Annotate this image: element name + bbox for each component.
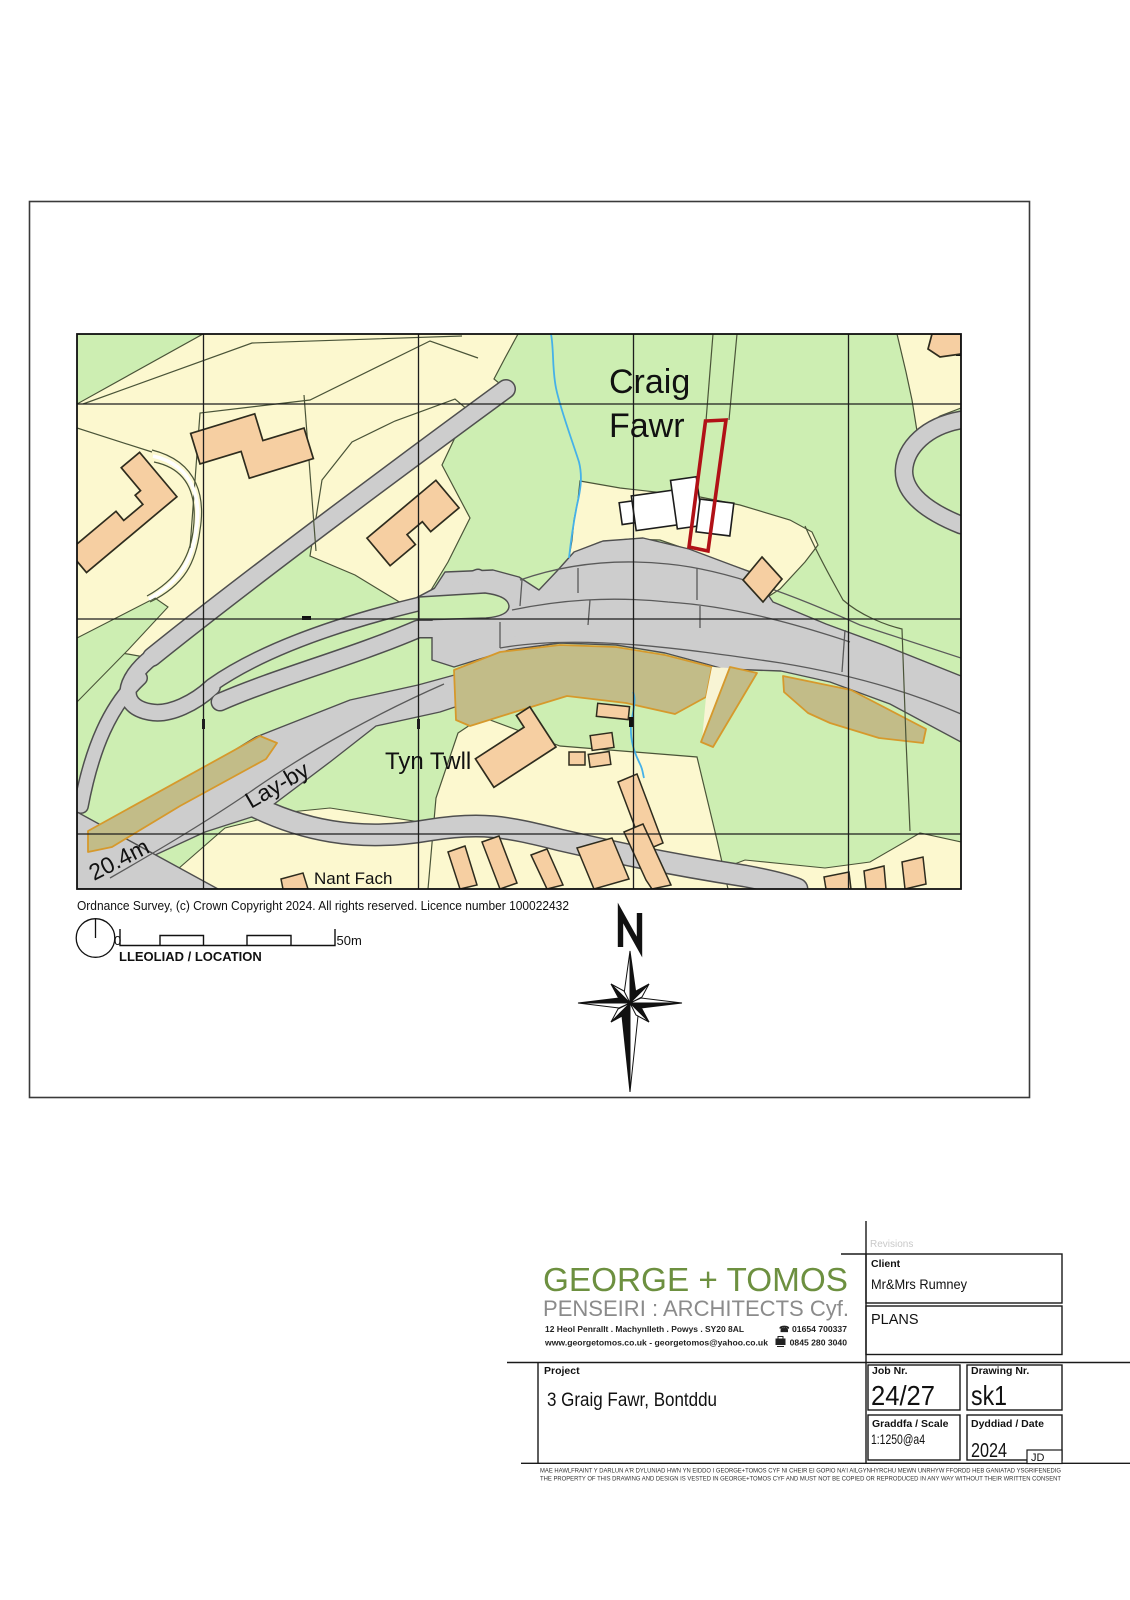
svg-text:GEORGE + TOMOS: GEORGE + TOMOS	[543, 1261, 848, 1298]
svg-text:Mr&Mrs Rumney: Mr&Mrs Rumney	[871, 1277, 967, 1292]
svg-text:Fawr: Fawr	[609, 407, 685, 445]
svg-text:Nant Fach: Nant Fach	[314, 869, 392, 888]
svg-text:Client: Client	[871, 1258, 901, 1270]
svg-text:1:1250@a4: 1:1250@a4	[871, 1431, 925, 1447]
svg-text:Ordnance Survey, (c) Crown Cop: Ordnance Survey, (c) Crown Copyright 202…	[77, 899, 569, 913]
svg-text:Job Nr.: Job Nr.	[872, 1365, 908, 1377]
svg-text:Revisions: Revisions	[870, 1239, 913, 1250]
svg-text:3 Graig Fawr, Bontddu: 3 Graig Fawr, Bontddu	[547, 1390, 717, 1411]
svg-text:sk1: sk1	[971, 1380, 1007, 1411]
svg-text:24/27: 24/27	[871, 1380, 935, 1411]
svg-text:0: 0	[114, 933, 121, 948]
svg-text:Graddfa / Scale: Graddfa / Scale	[872, 1418, 949, 1430]
svg-text:Project: Project	[544, 1365, 580, 1377]
svg-text:2024: 2024	[971, 1440, 1007, 1462]
svg-text:☎ 01654 700337: ☎ 01654 700337	[779, 1324, 847, 1334]
svg-text:MAE HAWLFRAINT Y DARLUN A'R DY: MAE HAWLFRAINT Y DARLUN A'R DYLUNIAD HWN…	[540, 1468, 1061, 1475]
svg-text:Dyddiad / Date: Dyddiad / Date	[971, 1418, 1044, 1430]
svg-text:Drawing Nr.: Drawing Nr.	[971, 1365, 1029, 1377]
svg-text:JD: JD	[1031, 1452, 1045, 1464]
svg-text:0845 280 3040: 0845 280 3040	[790, 1338, 848, 1348]
svg-text:Craig: Craig	[609, 363, 690, 401]
svg-text:12 Heol Penrallt . Machynlleth: 12 Heol Penrallt . Machynlleth . Powys .…	[545, 1324, 744, 1334]
svg-text:PENSEIRI : ARCHITECTS Cyf.: PENSEIRI : ARCHITECTS Cyf.	[543, 1296, 849, 1321]
svg-text:LLEOLIAD / LOCATION: LLEOLIAD / LOCATION	[119, 949, 262, 964]
svg-text:50m: 50m	[337, 933, 362, 948]
svg-text:THE PROPERTY OF THIS DRAWING A: THE PROPERTY OF THIS DRAWING AND DESIGN …	[540, 1476, 1061, 1483]
svg-text:Tyn Twll: Tyn Twll	[385, 748, 471, 775]
svg-text:PLANS: PLANS	[871, 1312, 919, 1328]
svg-text:www.georgetomos.co.uk - georg: www.georgetomos.co.uk - georgetomos@yaho…	[544, 1338, 768, 1348]
